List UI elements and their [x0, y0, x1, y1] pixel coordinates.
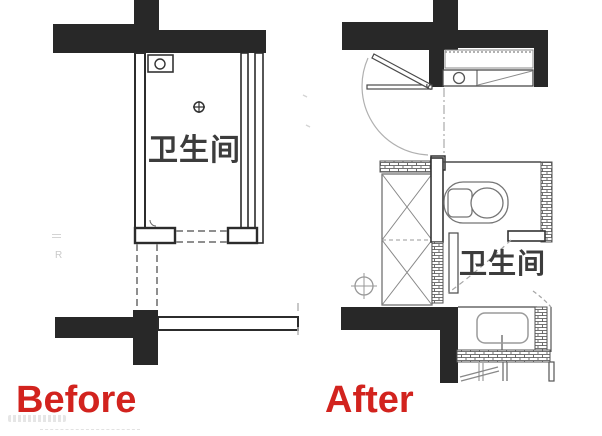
adjacent-room-furniture [460, 362, 507, 381]
floorplan-drawing [0, 0, 602, 436]
niche [445, 50, 533, 68]
tiled-wall [541, 162, 552, 242]
watermark [8, 415, 66, 422]
before-plan [53, 0, 298, 365]
wall-outline [549, 362, 554, 381]
floor-drain-icon [193, 101, 205, 113]
entry-door-swing-icon [362, 54, 432, 155]
adjacent-door-swing-arc [533, 291, 551, 307]
tiled-wall [380, 161, 432, 172]
wall-segment [508, 231, 545, 241]
wall [53, 0, 266, 53]
caption-after: After [325, 381, 414, 419]
room-label-before: 卫生间 [148, 136, 241, 166]
corner-arc [150, 220, 156, 226]
floorplan-comparison: 卫生间 卫生间 Before After R [0, 0, 602, 436]
margin-bars-mark [52, 234, 61, 240]
tiled-wall [457, 350, 550, 362]
room-label-after: 卫生间 [459, 250, 546, 278]
wall-column [133, 310, 158, 365]
washer-counter-icon [443, 70, 533, 86]
sink-icon [477, 313, 528, 350]
bottom-faint-dashes [40, 429, 140, 433]
tiled-wall [535, 307, 547, 352]
after-plan [303, 0, 554, 383]
margin-letter: R [55, 251, 62, 261]
floor-drain-icon [351, 273, 377, 299]
bathroom-door-leaf [449, 233, 458, 293]
vent-box-icon [148, 55, 173, 72]
wall-step [228, 228, 257, 243]
passage-dashed [137, 244, 157, 309]
partition-wall [431, 158, 443, 242]
wall-outline [158, 317, 298, 330]
caption-before: Before [16, 381, 136, 419]
wall [255, 53, 263, 243]
door-opening-dashed [176, 231, 229, 242]
wall-step [135, 228, 175, 243]
wall [341, 307, 458, 383]
wall [241, 53, 248, 229]
shower-storage-icon [382, 174, 432, 305]
watermark-specks [303, 95, 310, 127]
toilet-icon [444, 182, 508, 223]
tiled-wall [432, 242, 443, 303]
wall [55, 317, 133, 338]
wall [135, 53, 145, 230]
